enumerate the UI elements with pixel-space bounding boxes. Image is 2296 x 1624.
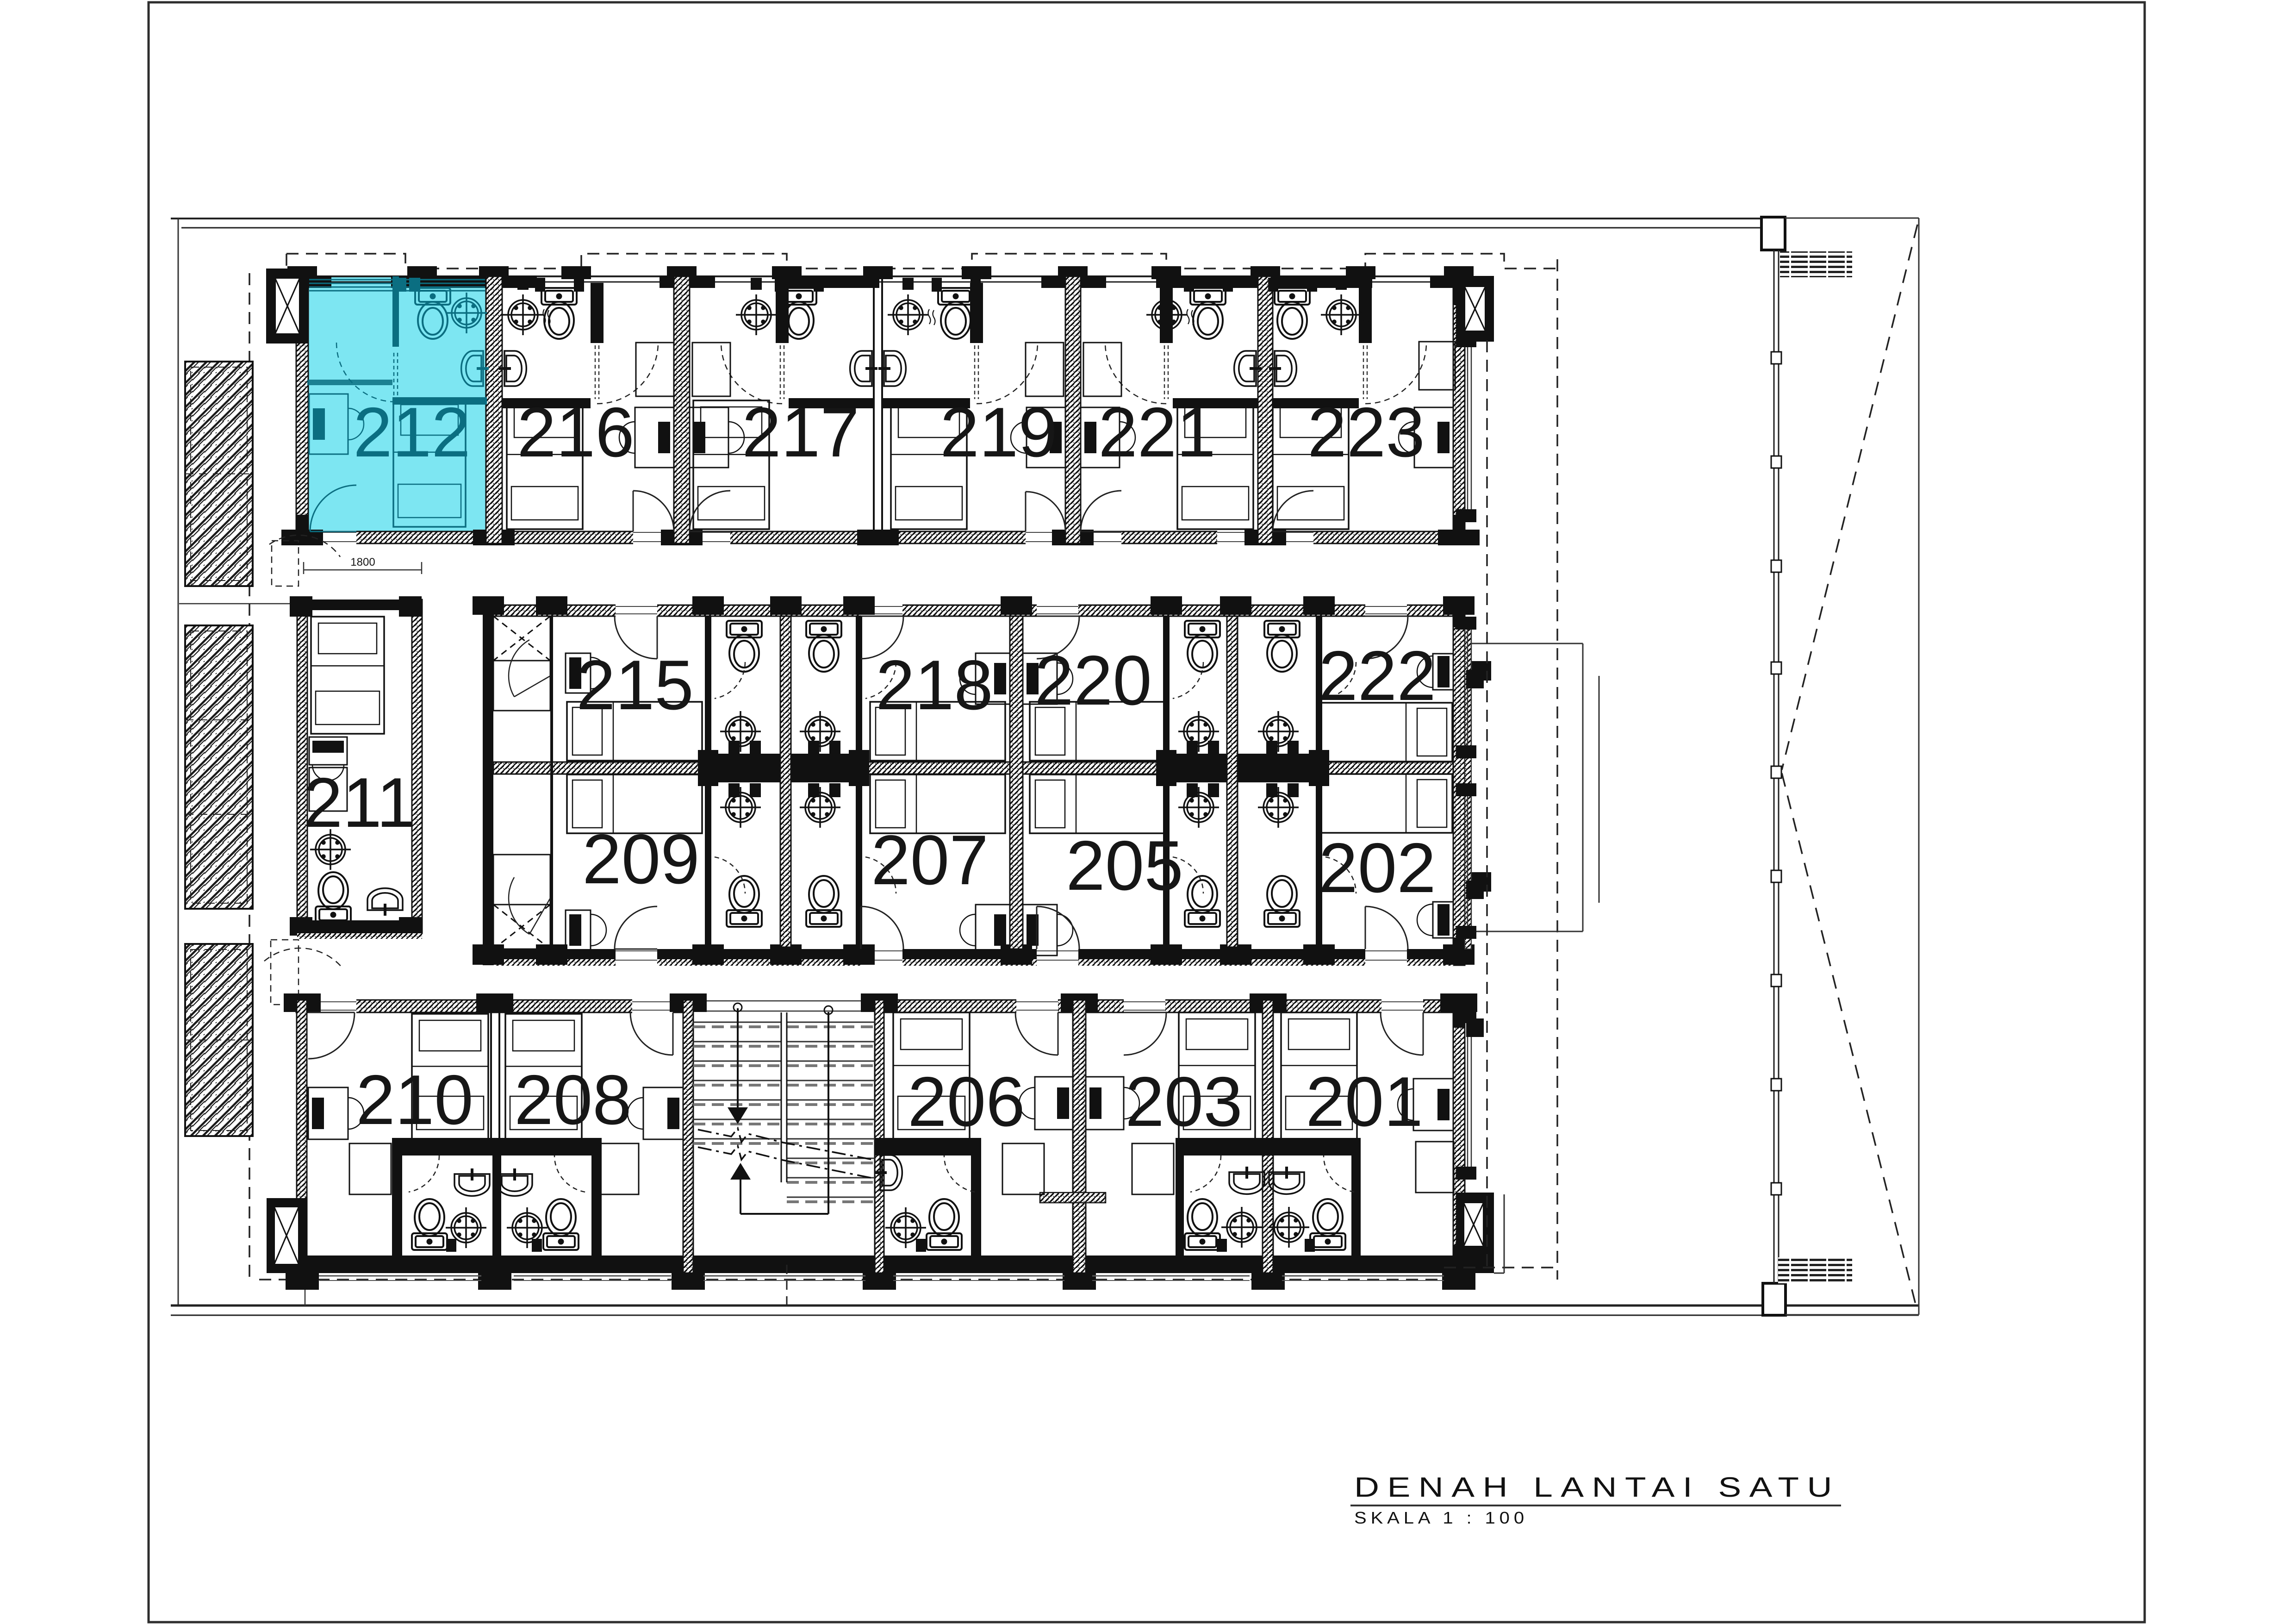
- svg-text:203: 203: [1125, 1062, 1243, 1141]
- svg-text:212: 212: [353, 393, 471, 472]
- svg-text:220: 220: [1034, 641, 1152, 720]
- svg-text:1800: 1800: [350, 556, 375, 568]
- svg-text:SKALA 1 : 100: SKALA 1 : 100: [1354, 1508, 1528, 1527]
- svg-text:206: 206: [908, 1062, 1025, 1141]
- svg-text:221: 221: [1098, 393, 1216, 472]
- svg-text:209: 209: [582, 820, 700, 899]
- svg-text:210: 210: [356, 1061, 473, 1139]
- svg-text:211: 211: [304, 763, 416, 842]
- svg-text:202: 202: [1319, 829, 1436, 907]
- svg-text:215: 215: [576, 646, 694, 725]
- svg-text:208: 208: [514, 1061, 632, 1139]
- svg-text:201: 201: [1306, 1062, 1423, 1141]
- svg-text:217: 217: [742, 393, 859, 472]
- svg-text:218: 218: [876, 646, 993, 725]
- svg-text:DENAH LANTAI SATU: DENAH LANTAI SATU: [1354, 1472, 1840, 1503]
- svg-text:223: 223: [1307, 393, 1425, 472]
- svg-text:205: 205: [1066, 826, 1183, 905]
- svg-text:216: 216: [517, 393, 635, 472]
- svg-text:207: 207: [871, 821, 989, 899]
- svg-text:222: 222: [1319, 637, 1436, 715]
- svg-text:219: 219: [940, 393, 1058, 472]
